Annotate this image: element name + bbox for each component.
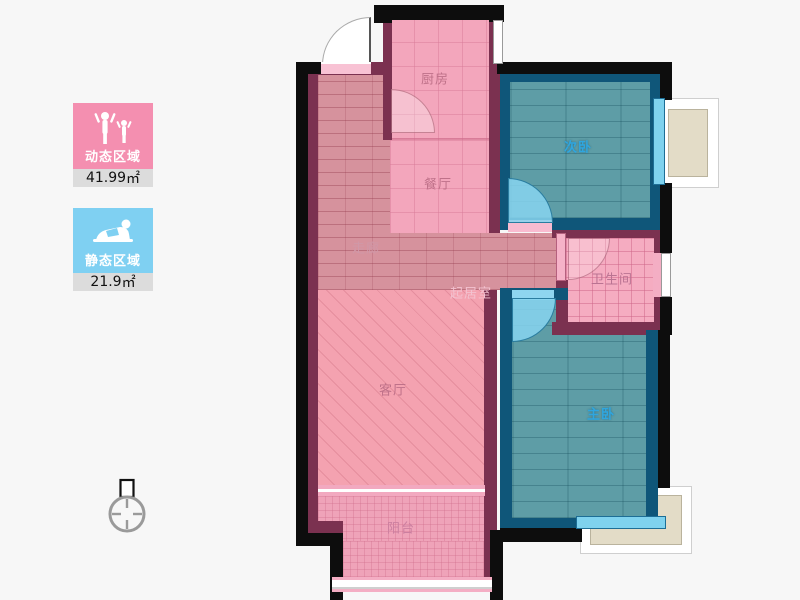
room-label-dining: 餐厅 xyxy=(424,174,452,193)
wall-segment xyxy=(500,288,512,530)
door-leaf-bathroom xyxy=(556,233,566,281)
window-bathroom-outer xyxy=(661,253,671,297)
window-bathroom xyxy=(653,253,661,297)
room-label-second-bedroom: 次卧 xyxy=(564,137,592,156)
wall-segment xyxy=(308,74,318,533)
wall-segment xyxy=(296,62,308,534)
door-arc-entry xyxy=(322,17,371,65)
floorplan: 厨房 餐厅 走廊 起居室 客厅 阳台 卫生间 次卧 主卧 xyxy=(0,0,800,600)
floor-balcony-lower xyxy=(343,541,484,578)
wall-segment xyxy=(383,5,504,20)
window-master-bedroom xyxy=(576,516,666,529)
room-label-kitchen: 厨房 xyxy=(421,69,449,88)
divider-kitchen-dining xyxy=(392,138,489,140)
wall-segment xyxy=(646,330,658,520)
wall-segment xyxy=(658,330,670,488)
wall-segment xyxy=(296,533,343,546)
room-label-corridor: 走廊 xyxy=(352,238,380,257)
wall-segment xyxy=(500,528,582,542)
room-label-living: 客厅 xyxy=(379,380,407,399)
room-label-master-bedroom: 主卧 xyxy=(587,404,615,423)
wall-segment xyxy=(296,62,322,74)
bay-platform-right-inner xyxy=(668,109,708,177)
door-sill-entry xyxy=(321,62,371,74)
window-living-balcony xyxy=(318,485,485,496)
wall-segment xyxy=(497,62,672,74)
floorplan-page: { "legend": { "dynamic": { "label": "动态区… xyxy=(0,0,800,600)
wall-segment xyxy=(556,280,568,322)
window-second-bedroom xyxy=(653,98,665,185)
room-label-bathroom: 卫生间 xyxy=(591,269,633,288)
wall-segment xyxy=(660,183,672,253)
window-kitchen-right xyxy=(493,20,503,64)
room-label-balcony: 阳台 xyxy=(387,518,415,537)
wall-segment xyxy=(660,62,672,100)
room-label-foyer: 起居室 xyxy=(450,283,492,302)
window-balcony xyxy=(332,577,492,592)
